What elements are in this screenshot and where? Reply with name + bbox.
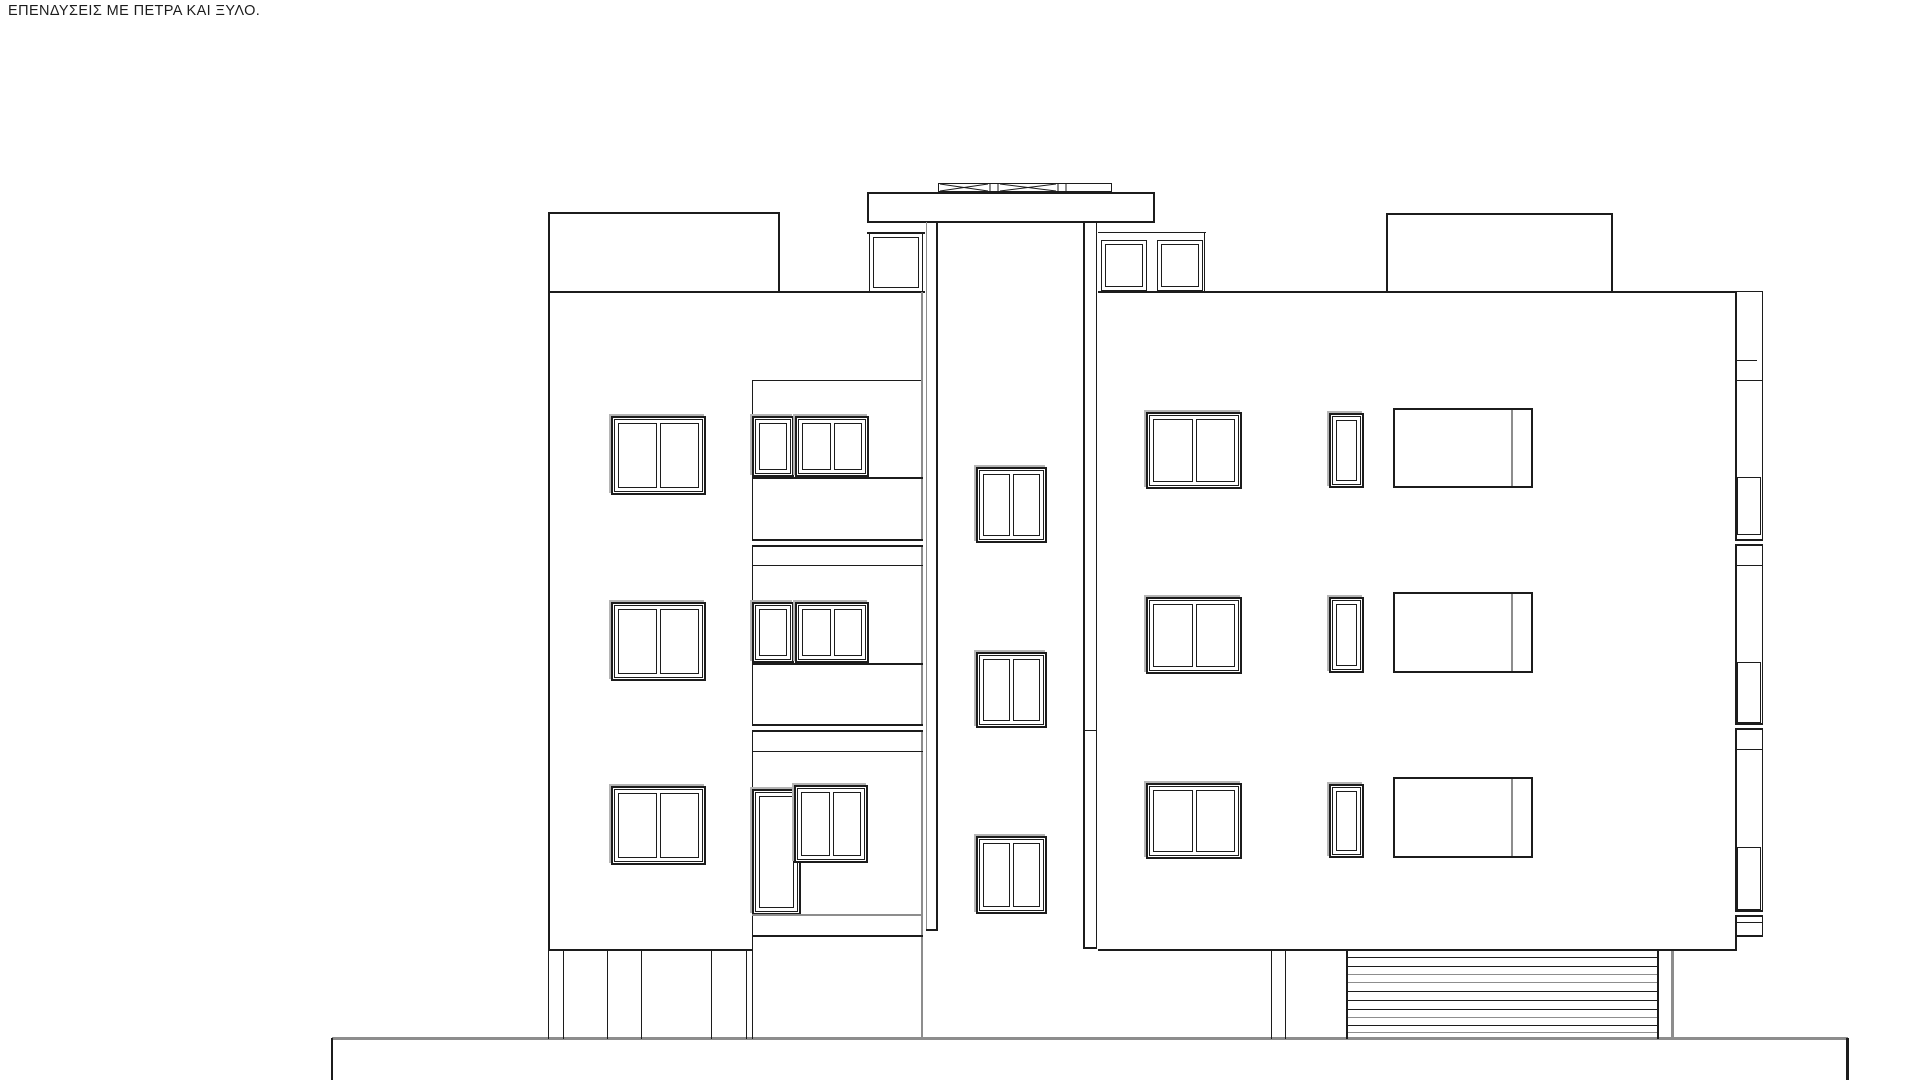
tower-wall-joint-tick bbox=[1083, 730, 1097, 731]
base-platform-right-edge bbox=[1846, 1038, 1849, 1080]
side-strip-line bbox=[1735, 380, 1763, 381]
balcony-small-window-floor3 bbox=[752, 416, 794, 477]
shutter-line bbox=[1348, 1017, 1657, 1018]
porch-beam-line bbox=[752, 935, 923, 937]
side-balcony-slab bbox=[1735, 539, 1763, 546]
porch-slab-line bbox=[752, 914, 923, 916]
base-platform-left-edge bbox=[331, 1038, 333, 1080]
ground-wall-left-edge bbox=[752, 935, 753, 1039]
shutter-line bbox=[1348, 966, 1657, 967]
side-balcony-soffit bbox=[1735, 565, 1763, 566]
side-strip-tick bbox=[1735, 360, 1757, 361]
left-wing-window-floor1 bbox=[611, 786, 706, 865]
right-facade-bottom-edge bbox=[1098, 949, 1737, 951]
left-roof-penthouse bbox=[548, 212, 780, 293]
right-wing-narrow-window-floor1 bbox=[1329, 784, 1364, 858]
side-balcony-slab bbox=[1735, 723, 1763, 730]
left-wing-window-floor2 bbox=[611, 602, 706, 681]
roof-box-right-edge bbox=[1204, 232, 1205, 291]
shutter-line bbox=[1348, 1032, 1657, 1033]
side-balcony-door-floor1 bbox=[1737, 847, 1761, 910]
balcony-soffit-line bbox=[752, 565, 923, 566]
pilotis-pier bbox=[711, 950, 747, 1039]
balcony-bay-top-edge bbox=[752, 380, 923, 381]
drawing-sheet: ΕΠΕΝΔΥΣΕΙΣ ΜΕ ΠΕΤΡΑ ΚΑΙ ΞΥΛΟ. bbox=[0, 0, 1920, 1080]
balcony-slab-edge bbox=[752, 539, 923, 547]
stair-window-upper bbox=[976, 467, 1047, 543]
shutter-line bbox=[1348, 982, 1657, 983]
right-facade-top-edge bbox=[1098, 291, 1737, 293]
stair-window-lower bbox=[976, 836, 1047, 914]
shutter-line bbox=[1348, 974, 1657, 975]
balcony-window-floor2 bbox=[795, 602, 869, 663]
cladding-note: ΕΠΕΝΔΥΣΕΙΣ ΜΕ ΠΕΤΡΑ ΚΑΙ ΞΥΛΟ. bbox=[8, 3, 260, 19]
side-balcony-soffit bbox=[1735, 749, 1763, 750]
left-facade-bottom-edge bbox=[548, 949, 753, 951]
tower-right-wall-end bbox=[1083, 947, 1097, 949]
balcony-window-floor3 bbox=[795, 416, 869, 477]
shutter-line bbox=[1348, 1009, 1657, 1010]
left-wing-window-floor3 bbox=[611, 416, 706, 495]
right-wing-window-floor3 bbox=[1146, 412, 1242, 489]
garage-roller-door bbox=[1346, 949, 1659, 1039]
left-facade-left-edge bbox=[548, 291, 550, 951]
roof-vent-row bbox=[938, 183, 1112, 192]
shutter-line bbox=[1348, 991, 1657, 992]
side-strip-top bbox=[1737, 291, 1763, 292]
balcony-window-floor1 bbox=[794, 785, 868, 863]
shutter-line bbox=[1348, 1025, 1657, 1026]
tower-left-wall-outer bbox=[926, 222, 927, 930]
balcony-soffit-line bbox=[752, 751, 923, 752]
roof-box-left bbox=[869, 233, 923, 292]
balcony-parapet-top bbox=[752, 477, 923, 479]
pilotis-pier bbox=[548, 950, 564, 1039]
balcony-bay-right-edge bbox=[921, 292, 923, 1039]
right-wing-wide-window-floor1 bbox=[1393, 777, 1533, 858]
side-balcony-door-floor3 bbox=[1737, 477, 1761, 535]
tower-right-wall-inner bbox=[1083, 222, 1085, 949]
tower-left-wall-end bbox=[926, 929, 938, 931]
side-strip-bottom bbox=[1735, 935, 1763, 937]
right-wing-narrow-window-floor3 bbox=[1329, 413, 1364, 488]
right-wing-wide-window-floor3 bbox=[1393, 408, 1533, 488]
stair-window-middle bbox=[976, 652, 1047, 728]
shutter-line bbox=[1348, 1000, 1657, 1001]
pilotis-pier bbox=[1271, 949, 1286, 1039]
side-balcony-slab bbox=[1735, 910, 1763, 917]
tower-right-wall-outer bbox=[1096, 222, 1097, 949]
pilotis-pier bbox=[607, 950, 642, 1039]
garage-jamb-line bbox=[1671, 949, 1674, 1039]
tower-left-wall-inner bbox=[936, 222, 938, 930]
balcony-parapet-top bbox=[752, 663, 923, 665]
right-wing-wide-window-floor2 bbox=[1393, 592, 1533, 673]
right-wing-window-floor1 bbox=[1146, 783, 1242, 859]
balcony-slab-edge bbox=[752, 724, 923, 732]
shutter-line bbox=[1348, 957, 1657, 958]
roof-box-right-1 bbox=[1101, 240, 1147, 291]
right-roof-penthouse bbox=[1386, 213, 1613, 293]
tower-roof-cap bbox=[867, 192, 1155, 223]
right-wing-narrow-window-floor2 bbox=[1329, 597, 1364, 673]
balcony-small-window-floor2 bbox=[752, 602, 794, 663]
roof-box-lintel-right bbox=[1098, 232, 1206, 233]
side-balcony-soffit bbox=[1735, 922, 1763, 923]
side-balcony-door-floor2 bbox=[1737, 662, 1761, 723]
right-wing-window-floor2 bbox=[1146, 597, 1242, 674]
side-strip-outer-edge bbox=[1762, 291, 1763, 937]
roof-box-right-2 bbox=[1157, 240, 1203, 291]
